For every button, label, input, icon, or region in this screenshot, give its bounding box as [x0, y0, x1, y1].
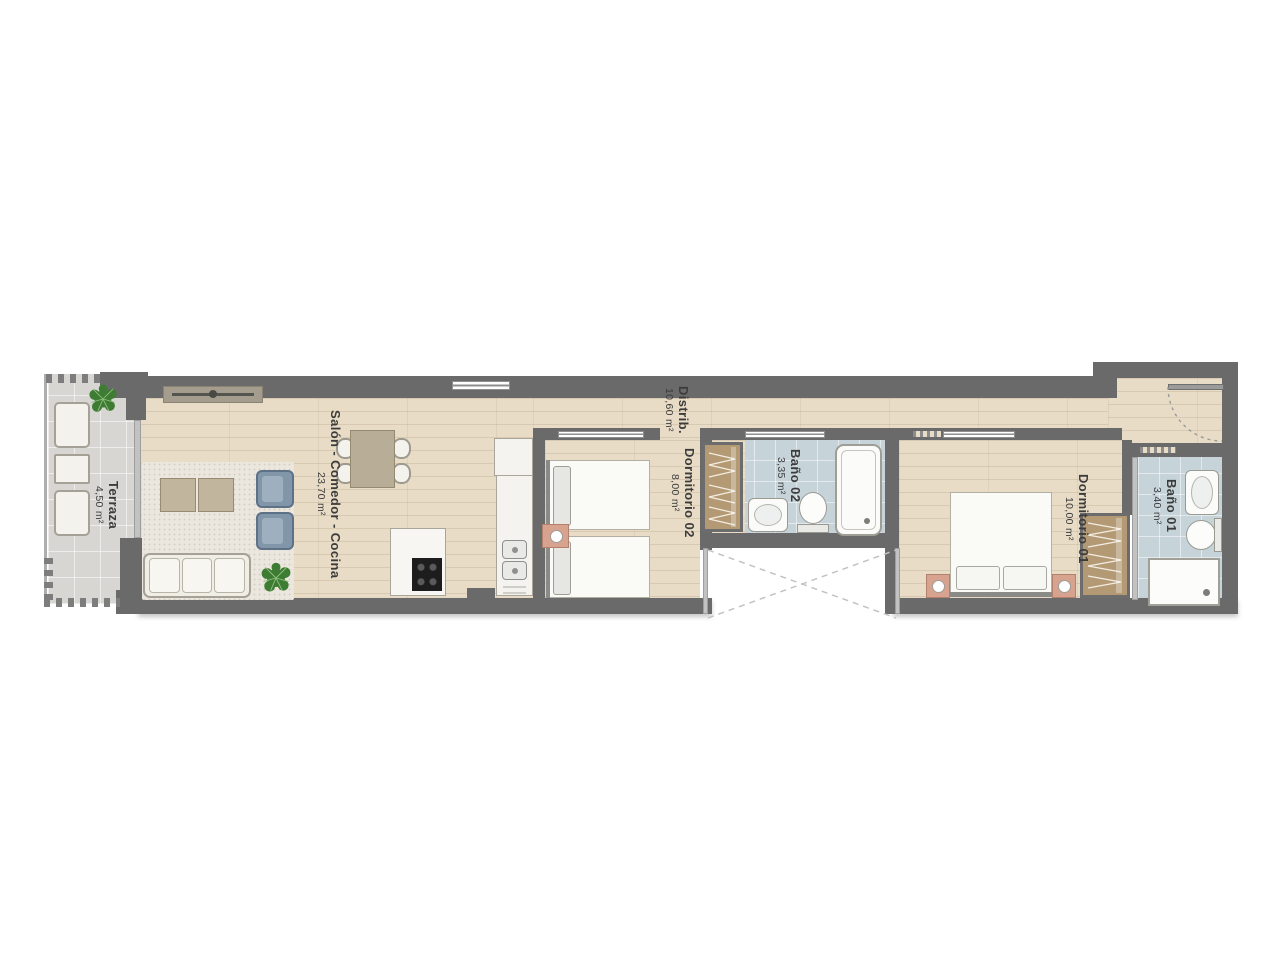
kitchen-sink-basin-2 — [502, 561, 527, 580]
wall-top-entry — [1093, 362, 1238, 378]
dining-table — [350, 430, 395, 488]
armchair-1 — [256, 470, 294, 508]
kitchen-drainboard — [503, 582, 526, 594]
bed02-a-headboard — [546, 460, 550, 530]
tv-stand-dot — [209, 390, 217, 398]
window-bano02 — [745, 431, 825, 438]
terrace-railing-bottom — [44, 598, 120, 607]
coffee-table-1 — [160, 478, 196, 512]
bed02-a-pillow — [553, 466, 571, 526]
cooktop — [412, 558, 442, 591]
bano01-shower — [1148, 558, 1220, 606]
bed01-pillow-2 — [1003, 566, 1047, 590]
label-dormitorio01: Dormitorio 01 10,00 m² — [1046, 466, 1090, 572]
bano02-toilet-bowl — [799, 492, 827, 524]
label-terraza: Terraza 4,50 m² — [78, 445, 120, 565]
door-threshold-bano01 — [1140, 447, 1176, 453]
bed01-headboard — [946, 592, 1056, 597]
wall-bottom-left — [138, 598, 712, 614]
label-salon: Salón - Comedor - Cocina 23,70 m² — [296, 408, 342, 580]
bano01-toilet-bowl — [1186, 520, 1216, 550]
nightstand-02 — [542, 524, 569, 548]
kitchen-tall-cabinet — [494, 438, 533, 476]
wardrobe-02 — [702, 442, 743, 532]
coffee-table-2 — [198, 478, 234, 512]
bano02-bathtub — [835, 444, 882, 536]
bano02-toilet-tank — [797, 524, 829, 533]
terrace-sliding-door — [134, 420, 141, 538]
bano01-toilet-tank — [1214, 518, 1222, 552]
wall-right — [1222, 376, 1238, 614]
wall-kitchen-step — [467, 588, 495, 600]
armchair-2 — [256, 512, 294, 550]
living-plant-icon — [258, 560, 294, 596]
window-dorm02 — [558, 431, 644, 438]
terrace-railing-left — [44, 558, 53, 600]
floor-plan: Terraza 4,50 m² Salón - Comedor - Cocina… — [0, 0, 1280, 960]
label-bano01: Baño 01 3,40 m² — [1138, 462, 1178, 550]
wall-left-top-stub — [126, 376, 146, 420]
bed01-pillow-1 — [956, 566, 1000, 590]
wall-dorm02-left — [533, 428, 545, 614]
patio-wall-left — [703, 548, 708, 614]
door-threshold-dorm01 — [913, 431, 941, 437]
window-dorm01 — [943, 431, 1015, 438]
bano01-sink — [1185, 470, 1219, 515]
patio-wall-right — [895, 548, 900, 614]
nightstand-01-right — [1052, 574, 1076, 598]
entry-door-leaf — [1168, 384, 1224, 390]
terrace-lounger-1 — [54, 402, 90, 448]
bed02-b-pillow — [553, 541, 571, 595]
label-dormitorio02: Dormitorio 02 8,00 m² — [652, 440, 696, 546]
label-distrib: Distrib. 10,60 m² — [650, 378, 690, 442]
label-bano02: Baño 02 3,35 m² — [762, 442, 802, 510]
sofa — [143, 553, 251, 598]
window-kitchen-top — [452, 381, 510, 390]
terrace-plant-icon — [86, 382, 120, 416]
wall-entry-step — [1093, 378, 1117, 398]
kitchen-sink-basin-1 — [502, 540, 527, 559]
patio-void — [705, 548, 898, 620]
nightstand-01-left — [926, 574, 950, 598]
